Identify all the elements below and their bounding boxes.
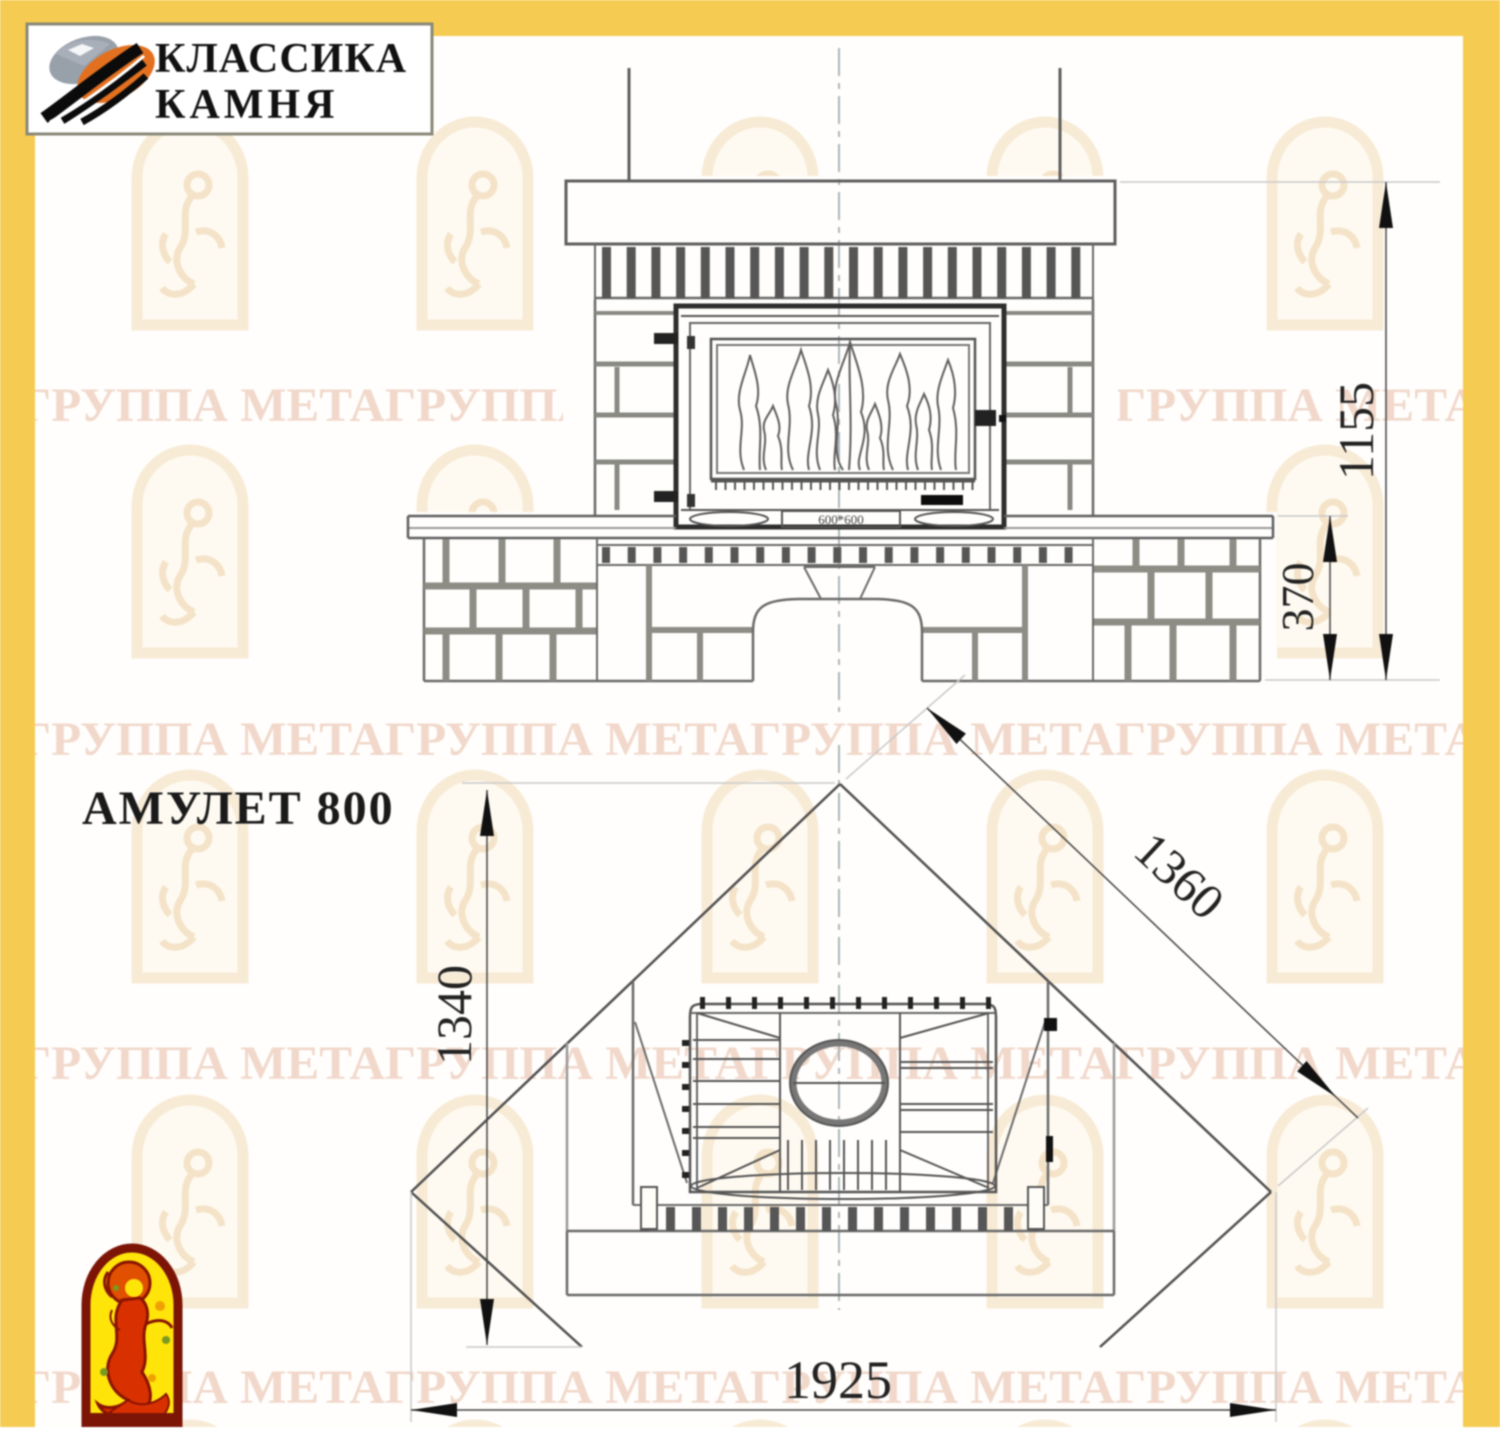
svg-text:370: 370 [1272,563,1323,632]
svg-text:ГРУППА МЕТАГРУППА МЕТАГРУППА М: ГРУППА МЕТАГРУППА МЕТАГРУППА МЕТАГРУППА … [20,713,1480,766]
svg-text:АМУЛЕТ 800: АМУЛЕТ 800 [82,782,395,835]
svg-text:600*600: 600*600 [818,512,864,527]
svg-text:КЛАССИКА: КЛАССИКА [155,36,407,82]
svg-text:1340: 1340 [426,965,482,1065]
svg-text:ГРУППА МЕТАГРУППА МЕТАГРУППА М: ГРУППА МЕТАГРУППА МЕТАГРУППА МЕТАГРУППА … [20,1037,1480,1090]
svg-text:КАМНЯ: КАМНЯ [155,82,338,128]
svg-text:1925: 1925 [784,1350,892,1410]
svg-text:1155: 1155 [1328,382,1384,480]
svg-text:ГРУППА МЕТАГРУППА МЕТАГРУППА М: ГРУППА МЕТАГРУППА МЕТАГРУППА МЕТАГРУППА … [20,1361,1480,1414]
